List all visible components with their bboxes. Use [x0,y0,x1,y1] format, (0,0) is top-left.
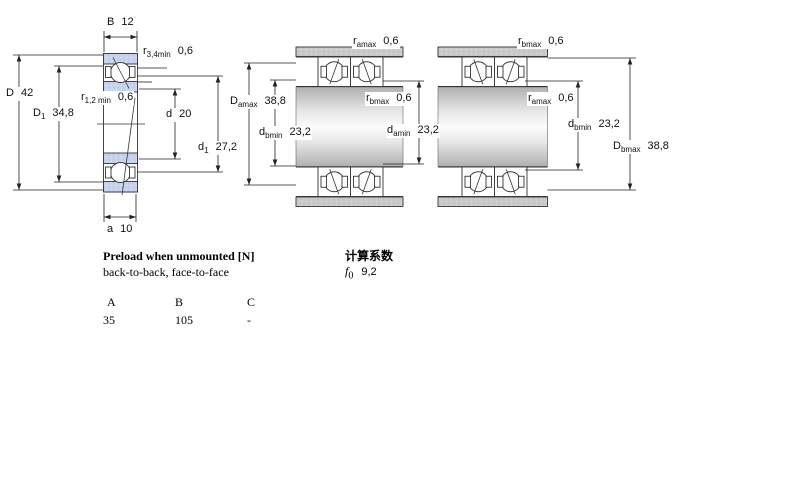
dim-label-dbmin-right: dbmin23,2 [567,118,621,132]
dim-label-r12min: r1,2 min0,6 [80,91,134,105]
dim-label-D: D42 [5,87,34,101]
dim-label-rbmax-mid: rbmax0,6 [365,92,413,106]
dim-label-Damax: Damax38,8 [229,95,287,109]
figure-single-bearing [97,54,145,196]
dim-label-r34min: r3,4min0,6 [142,45,194,59]
dim-label-Dbmax: Dbmax38,8 [612,140,670,154]
bearing-unit [495,167,528,197]
bearing-unit [462,57,495,87]
calc-factors-title: 计算系数 [345,249,393,263]
dim-label-B: B12 [106,16,135,30]
preload-val-b: 105 [175,313,193,327]
preload-val-c: - [247,313,251,327]
bearing-dimension-drawing: B12 r3,4min0,6 D42 D134,8 r1,2 min0,6 d2… [0,0,800,500]
bearing-unit [495,57,528,87]
dim-label-a: a10 [106,223,133,237]
bearing-unit [351,57,384,87]
calc-f0: f09,2 [345,264,377,283]
ball-bottom [111,163,131,183]
bearing-unit [318,57,351,87]
dim-label-d1: d127,2 [197,141,238,155]
dim-label-ramax-mid: ramax0,6 [352,35,400,49]
preload-title: Preload when unmounted [N] [103,249,254,263]
dim-label-damin: damin23,2 [386,124,440,138]
dim-label-rbmax-right: rbmax0,6 [517,35,565,49]
preload-subtitle: back-to-back, face-to-face [103,265,229,279]
figure-pair-right [438,47,548,207]
preload-col-a: A [107,295,116,309]
bearing-unit [351,167,384,197]
preload-col-b: B [175,295,183,309]
preload-col-c: C [247,295,255,309]
dim-label-dbmin-mid: dbmin23,2 [258,126,312,140]
bearing-unit [318,167,351,197]
dim-label-D1: D134,8 [32,107,75,121]
bearing-unit [462,167,495,197]
dim-label-ramax-right: ramax0,6 [527,92,575,106]
dim-label-d: d20 [165,108,192,122]
preload-val-a: 35 [103,313,115,327]
